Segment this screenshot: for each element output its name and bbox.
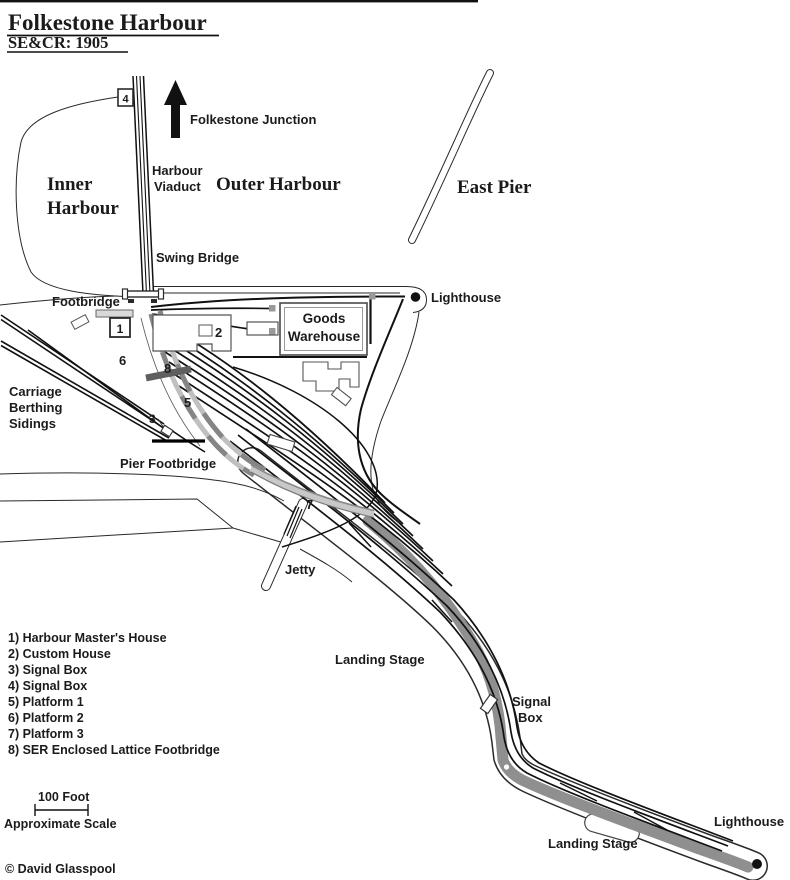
track-lines — [1, 76, 733, 851]
label-landing-stage-lower: Landing Stage — [548, 836, 638, 851]
harbour-viaduct-tracks — [133, 76, 154, 294]
lighthouse-dot-outer — [411, 292, 421, 302]
page-subtitle: SE&CR: 1905 — [8, 33, 108, 52]
label-jetty: Jetty — [285, 562, 316, 577]
label-signal-box-2: Box — [518, 710, 543, 725]
legend-item-2: 2) Custom House — [8, 647, 111, 661]
north-arrow-icon — [164, 80, 187, 138]
east-pier-shape — [412, 73, 490, 240]
small-tilted-building — [331, 388, 351, 406]
diagram-canvas: Folkestone Harbour SE&CR: 1905 Folkeston… — [0, 0, 790, 880]
marker-7: 7 — [306, 497, 313, 512]
label-goods-warehouse-2: Warehouse — [288, 329, 361, 344]
irregular-building — [303, 362, 359, 391]
scale-caption: Approximate Scale — [4, 817, 117, 831]
label-inner-harbour-2: Harbour — [47, 198, 119, 219]
harbour-pier-body — [252, 462, 753, 867]
inner-harbour-outline — [16, 97, 142, 297]
label-footbridge: Footbridge — [52, 294, 120, 309]
shoreline-2 — [0, 499, 233, 528]
scale-bracket — [35, 804, 88, 816]
label-carriage-sidings-1: Carriage — [9, 384, 62, 399]
label-inner-harbour-1: Inner — [47, 174, 93, 195]
label-carriage-sidings-2: Berthing — [9, 400, 63, 415]
footbridge-icon — [123, 289, 164, 303]
label-goods-warehouse-1: Goods — [303, 311, 346, 326]
shoreline-1 — [0, 473, 284, 501]
label-landing-stage-upper: Landing Stage — [335, 652, 425, 667]
label-harbour-viaduct-1: Harbour — [152, 163, 203, 178]
label-pier-footbridge: Pier Footbridge — [120, 456, 216, 471]
legend: 1) Harbour Master's House 2) Custom Hous… — [8, 631, 220, 757]
label-signal-box-1: Signal — [512, 694, 551, 709]
label-carriage-sidings-3: Sidings — [9, 416, 56, 431]
legend-item-4: 4) Signal Box — [8, 679, 87, 693]
legend-item-8: 8) SER Enclosed Lattice Footbridge — [8, 743, 220, 757]
marker-2: 2 — [215, 325, 222, 340]
marker-5: 5 — [184, 395, 191, 410]
legend-item-5: 5) Platform 1 — [8, 695, 84, 709]
label-swing-bridge: Swing Bridge — [156, 250, 239, 265]
label-folkestone-junction: Folkestone Junction — [190, 112, 316, 127]
label-lighthouse-outer: Lighthouse — [431, 290, 501, 305]
legend-item-1: 1) Harbour Master's House — [8, 631, 167, 645]
pier-bend-dot — [504, 764, 509, 769]
legend-item-7: 7) Platform 3 — [8, 727, 84, 741]
label-outer-harbour: Outer Harbour — [216, 174, 341, 195]
legend-item-3: 3) Signal Box — [8, 663, 87, 677]
page-title: Folkestone Harbour — [8, 10, 207, 35]
lighthouse-dot-pier — [752, 859, 762, 869]
label-lighthouse-pier: Lighthouse — [714, 814, 784, 829]
quayside-structure — [96, 310, 133, 317]
marker-6: 6 — [119, 353, 126, 368]
quay-marker-1 — [269, 305, 276, 312]
label-east-pier: East Pier — [457, 177, 532, 198]
legend-item-6: 6) Platform 2 — [8, 711, 84, 725]
shoreline-3 — [0, 528, 233, 542]
scale-distance: 100 Foot — [38, 790, 90, 804]
marker-8: 8 — [164, 361, 171, 376]
label-harbour-viaduct-2: Viaduct — [154, 179, 201, 194]
copyright-text: © David Glasspool — [5, 862, 116, 876]
top-border-line — [0, 0, 478, 2]
marker-4: 4 — [122, 94, 129, 106]
quay-marker-3 — [369, 293, 376, 300]
marker-3: 3 — [149, 412, 156, 426]
quay-marker-2 — [269, 328, 276, 335]
folkestone-harbour-track-diagram: Folkestone Harbour SE&CR: 1905 Folkeston… — [0, 0, 790, 880]
slipway-structure — [71, 315, 89, 330]
buildings — [71, 303, 498, 714]
marker-1: 1 — [117, 322, 124, 336]
